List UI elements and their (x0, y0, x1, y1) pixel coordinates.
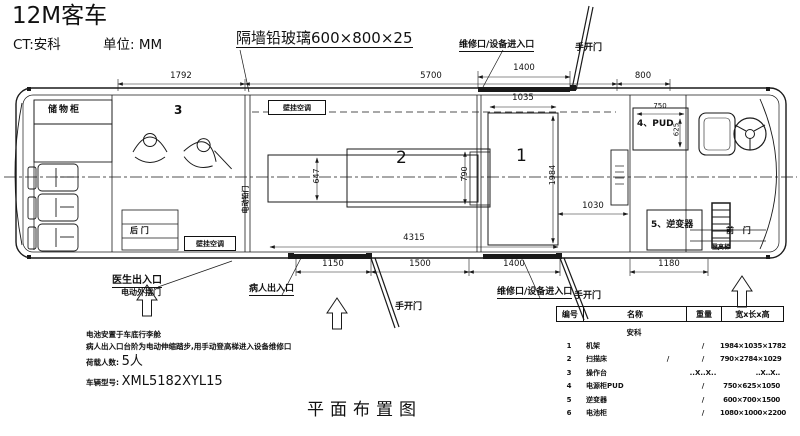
dim-1500: 1500 (400, 260, 440, 269)
row-size: 600×700×1500 (720, 396, 780, 404)
dim-625: 625 (674, 116, 681, 144)
dim-1792: 1792 (161, 72, 201, 81)
note-line-3: 荷载人数: 5人 (86, 352, 291, 372)
dim-647: 647 (313, 158, 321, 194)
dim-5700: 5700 (411, 72, 451, 81)
dim-800: 800 (623, 72, 663, 81)
brand-name: 安科 (582, 327, 686, 339)
brand-row: 安科 (556, 327, 784, 339)
ct-brand-label: CT:安科 (13, 39, 61, 53)
room-2-number: 2 (396, 150, 407, 167)
row-name: 操作台 (582, 368, 650, 378)
floor-plan-canvas: 12M客车 CT:安科 单位: MM 隔墙铅玻璃600×800×25 维修口/设… (0, 0, 800, 436)
row-size: 1080×1000×2200 (720, 409, 780, 417)
dim-1984: 1984 (549, 157, 557, 193)
capacity-label: 荷载人数: (86, 358, 119, 367)
glass-partition-callout: 隔墙铅玻璃600×800×25 (236, 31, 413, 48)
note-line-1: 电池安置于车底行李舱 (86, 329, 291, 341)
wall-ac-label-rear: 壁挂空调 (196, 239, 224, 249)
table-row: 6 电池柜 / 1080×1000×2200 (556, 407, 784, 421)
wall-ac-box-rear: 壁挂空调 (184, 236, 236, 251)
dim-1400-top: 1400 (504, 64, 544, 73)
dim-4315: 4315 (394, 234, 434, 243)
row-name: 机架 (582, 341, 650, 351)
row-size: ..X..X.. (720, 369, 780, 377)
row-size: 750×625×1050 (720, 382, 780, 390)
manual-door-label-top: 手开门 (575, 44, 602, 53)
table-row: 2 扫描床 / / 790×2784×1029 (556, 353, 784, 367)
header-size: 宽x长x高 (721, 307, 783, 321)
patient-entrance-label: 病人出入口 (249, 285, 294, 296)
row-name: 扫描床 (582, 354, 650, 364)
row-weight: / (686, 382, 720, 390)
inverter-label: 5、逆变器 (651, 221, 693, 230)
wall-ac-label-top: 壁挂空调 (283, 103, 311, 113)
room-3-number: 3 (174, 104, 182, 116)
row-name: 电池柜 (582, 408, 650, 418)
model-value: XML5182XYL15 (122, 374, 223, 389)
row-weight: / (686, 342, 720, 350)
table-row: 3 操作台 ..X..X.. ..X..X.. (556, 366, 784, 380)
row-weight: ..X..X.. (686, 369, 720, 377)
electric-outswing-door-label: 电动外摆门 (121, 289, 161, 297)
dim-790: 790 (461, 156, 469, 192)
row-size: 1984×1035×1782 (720, 342, 780, 350)
model-label: 车辆型号: (86, 378, 119, 387)
rear-door-label: 后 门 (130, 227, 149, 235)
dim-1150: 1150 (313, 260, 353, 269)
ladder-label: 登高梯 (712, 245, 730, 251)
row-no: 1 (556, 342, 582, 350)
dim-1030: 1030 (573, 202, 613, 211)
drawing-title: 12M客车 (12, 5, 107, 28)
note-line-2: 病人出入口台阶为电动伸缩踏步,用手动登高梯进入设备维修口 (86, 341, 291, 353)
row-mid: / (650, 355, 686, 363)
parts-table: 编号 名称 重量 宽x长x高 安科 1 机架 / 1984×1035×1782 … (556, 306, 784, 420)
notes-block: 电池安置于车底行李舱 病人出入口台阶为电动伸缩踏步,用手动登高梯进入设备维修口 … (86, 329, 291, 393)
table-row: 5 逆变器 / 600×700×1500 (556, 393, 784, 407)
row-weight: / (686, 355, 720, 363)
maintenance-port-label-top: 维修口/设备进入口 (459, 41, 534, 52)
manual-door-label-bottom-1: 手开门 (395, 303, 422, 312)
table-row: 1 机架 / 1984×1035×1782 (556, 339, 784, 353)
wall-ac-box-top: 壁挂空调 (268, 100, 326, 115)
door-sills (288, 85, 576, 259)
row-no: 4 (556, 382, 582, 390)
dim-1400-bottom: 1400 (494, 260, 534, 269)
row-name: 逆变器 (582, 395, 650, 405)
header-weight: 重量 (686, 307, 721, 321)
storage-cabinet-label: 储物柜 (48, 106, 81, 115)
row-no: 6 (556, 409, 582, 417)
scan-bed (268, 149, 490, 207)
drawing-caption: 平面布置图 (307, 402, 422, 419)
unit-label: 单位: MM (103, 39, 162, 53)
row-name: 电源柜PUD (582, 381, 650, 391)
front-door-label: 前 门 (726, 227, 754, 235)
table-row: 4 电源柜PUD / 750×625×1050 (556, 380, 784, 394)
header-name: 名称 (583, 307, 687, 321)
electric-lead-door-label: 电动铅门 (243, 182, 250, 218)
dim-1035: 1035 (503, 94, 543, 103)
row-no: 5 (556, 396, 582, 404)
doctor-exit-label: 医生出入口 (112, 276, 162, 288)
row-no: 3 (556, 369, 582, 377)
row-weight: / (686, 396, 720, 404)
row-no: 2 (556, 355, 582, 363)
capacity-value: 5人 (122, 354, 143, 369)
pud-cabinet-label: 4、PUD (637, 120, 674, 129)
dim-750: 750 (645, 103, 675, 110)
maintenance-port-label-bottom: 维修口/设备进入口 (497, 288, 572, 299)
operator-figures (133, 134, 238, 178)
row-size: 790×2784×1029 (720, 355, 780, 363)
dim-1180: 1180 (649, 260, 689, 269)
row-weight: / (686, 409, 720, 417)
note-line-4: 车辆型号: XML5182XYL15 (86, 372, 291, 392)
parts-table-header: 编号 名称 重量 宽x长x高 (556, 306, 784, 322)
room-1-number: 1 (516, 148, 527, 165)
header-no: 编号 (557, 307, 583, 321)
manual-door-label-bottom-2: 手开门 (574, 292, 601, 301)
